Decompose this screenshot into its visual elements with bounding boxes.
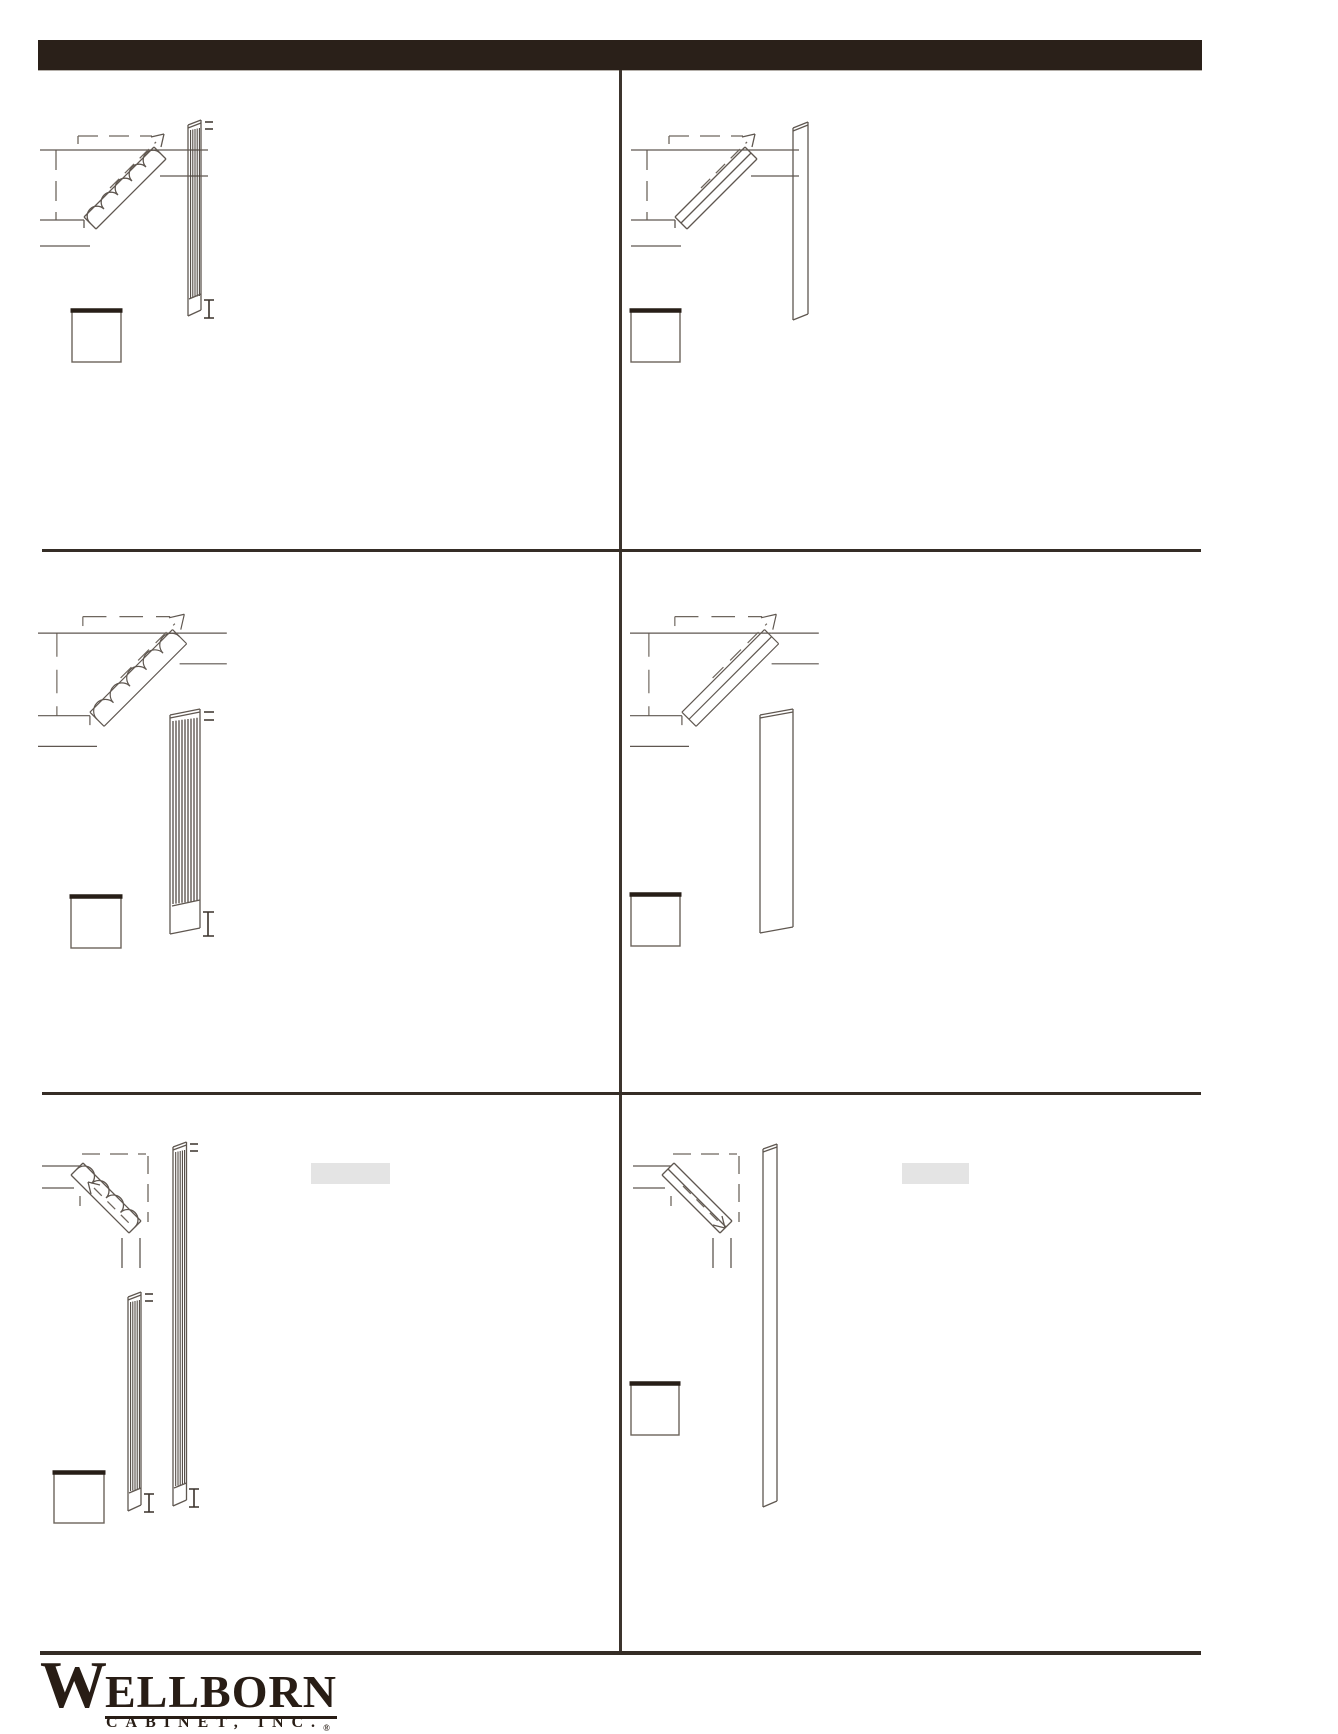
logo-wordmark: WELLBORN xyxy=(40,1652,337,1719)
corner-cabinet-isometric-mirrored xyxy=(42,1154,148,1268)
highlight-rectangle xyxy=(902,1163,969,1184)
scalloped-moulding-edge xyxy=(94,633,180,719)
direction-arrow-icon xyxy=(169,614,184,629)
catalog-page: { "page": { "width": 1338, "height": 173… xyxy=(0,0,1338,1731)
corner-cabinet-isometric xyxy=(40,134,208,246)
wide-plain-filler-front-view xyxy=(760,709,793,933)
finish-swatch-box xyxy=(70,896,123,948)
finish-swatch-box xyxy=(53,1472,106,1523)
corner-fluted-filler-diagram-small xyxy=(38,70,619,551)
cell-row2-left xyxy=(38,553,619,1092)
tall-plain-filler-front-view xyxy=(763,1144,777,1507)
plain-moulding-edge xyxy=(681,153,751,223)
logo-name-rest: ELLBORN xyxy=(105,1669,337,1719)
cell-row3-right xyxy=(621,1095,1202,1653)
dimension-marks xyxy=(189,1144,199,1507)
wellborn-logo: WELLBORN CABINET, INC.® xyxy=(40,1652,337,1734)
finish-swatch-box xyxy=(71,310,123,362)
direction-arrow-icon xyxy=(742,134,755,147)
header-bar xyxy=(38,40,1202,71)
dimension-marks xyxy=(203,712,214,936)
cell-row2-right xyxy=(621,553,1202,1092)
corner-plain-filler-diagram-mirrored xyxy=(621,1095,1202,1653)
cell-row1-right xyxy=(621,70,1202,551)
finish-swatch-box xyxy=(630,894,682,946)
corner-plain-filler-diagram-small xyxy=(621,70,1202,551)
flute-lines xyxy=(173,718,197,904)
direction-arrow-icon xyxy=(151,134,164,147)
finish-swatch-box xyxy=(630,310,682,362)
flute-lines xyxy=(131,1300,140,1491)
cell-row1-left xyxy=(38,70,619,551)
scalloped-moulding-edge xyxy=(87,150,160,223)
corner-plain-filler-diagram-large xyxy=(621,553,1202,1092)
corner-fluted-filler-diagram-mirrored xyxy=(38,1095,619,1653)
logo-subtitle-text: CABINET, INC. xyxy=(106,1714,323,1731)
plain-filler-front-view xyxy=(793,122,808,320)
dimension-marks xyxy=(144,1294,154,1512)
narrow-fluted-filler-front-view xyxy=(128,1292,154,1512)
plain-moulding-edge xyxy=(689,637,772,720)
scalloped-moulding-edge xyxy=(77,1166,138,1227)
corner-cabinet-isometric-large xyxy=(630,614,819,746)
corner-cabinet-isometric-mirrored xyxy=(633,1154,739,1268)
corner-cabinet-isometric-large xyxy=(38,614,227,746)
tall-fluted-filler-front-view xyxy=(173,1142,199,1507)
highlight-rectangle xyxy=(311,1163,390,1184)
plain-moulding-edge xyxy=(668,1169,726,1227)
corner-cabinet-isometric xyxy=(631,134,799,246)
wide-fluted-filler-front-view xyxy=(170,709,214,936)
logo-initial: W xyxy=(40,1652,105,1719)
flute-lines xyxy=(176,1150,185,1486)
corner-fluted-filler-diagram-large xyxy=(38,553,619,1092)
direction-arrow-icon xyxy=(761,614,776,629)
dimension-marks xyxy=(204,122,214,318)
finish-swatch-box xyxy=(630,1383,681,1435)
flute-lines xyxy=(191,128,200,298)
registered-trademark-icon: ® xyxy=(323,1723,330,1733)
cell-row3-left xyxy=(38,1095,619,1653)
